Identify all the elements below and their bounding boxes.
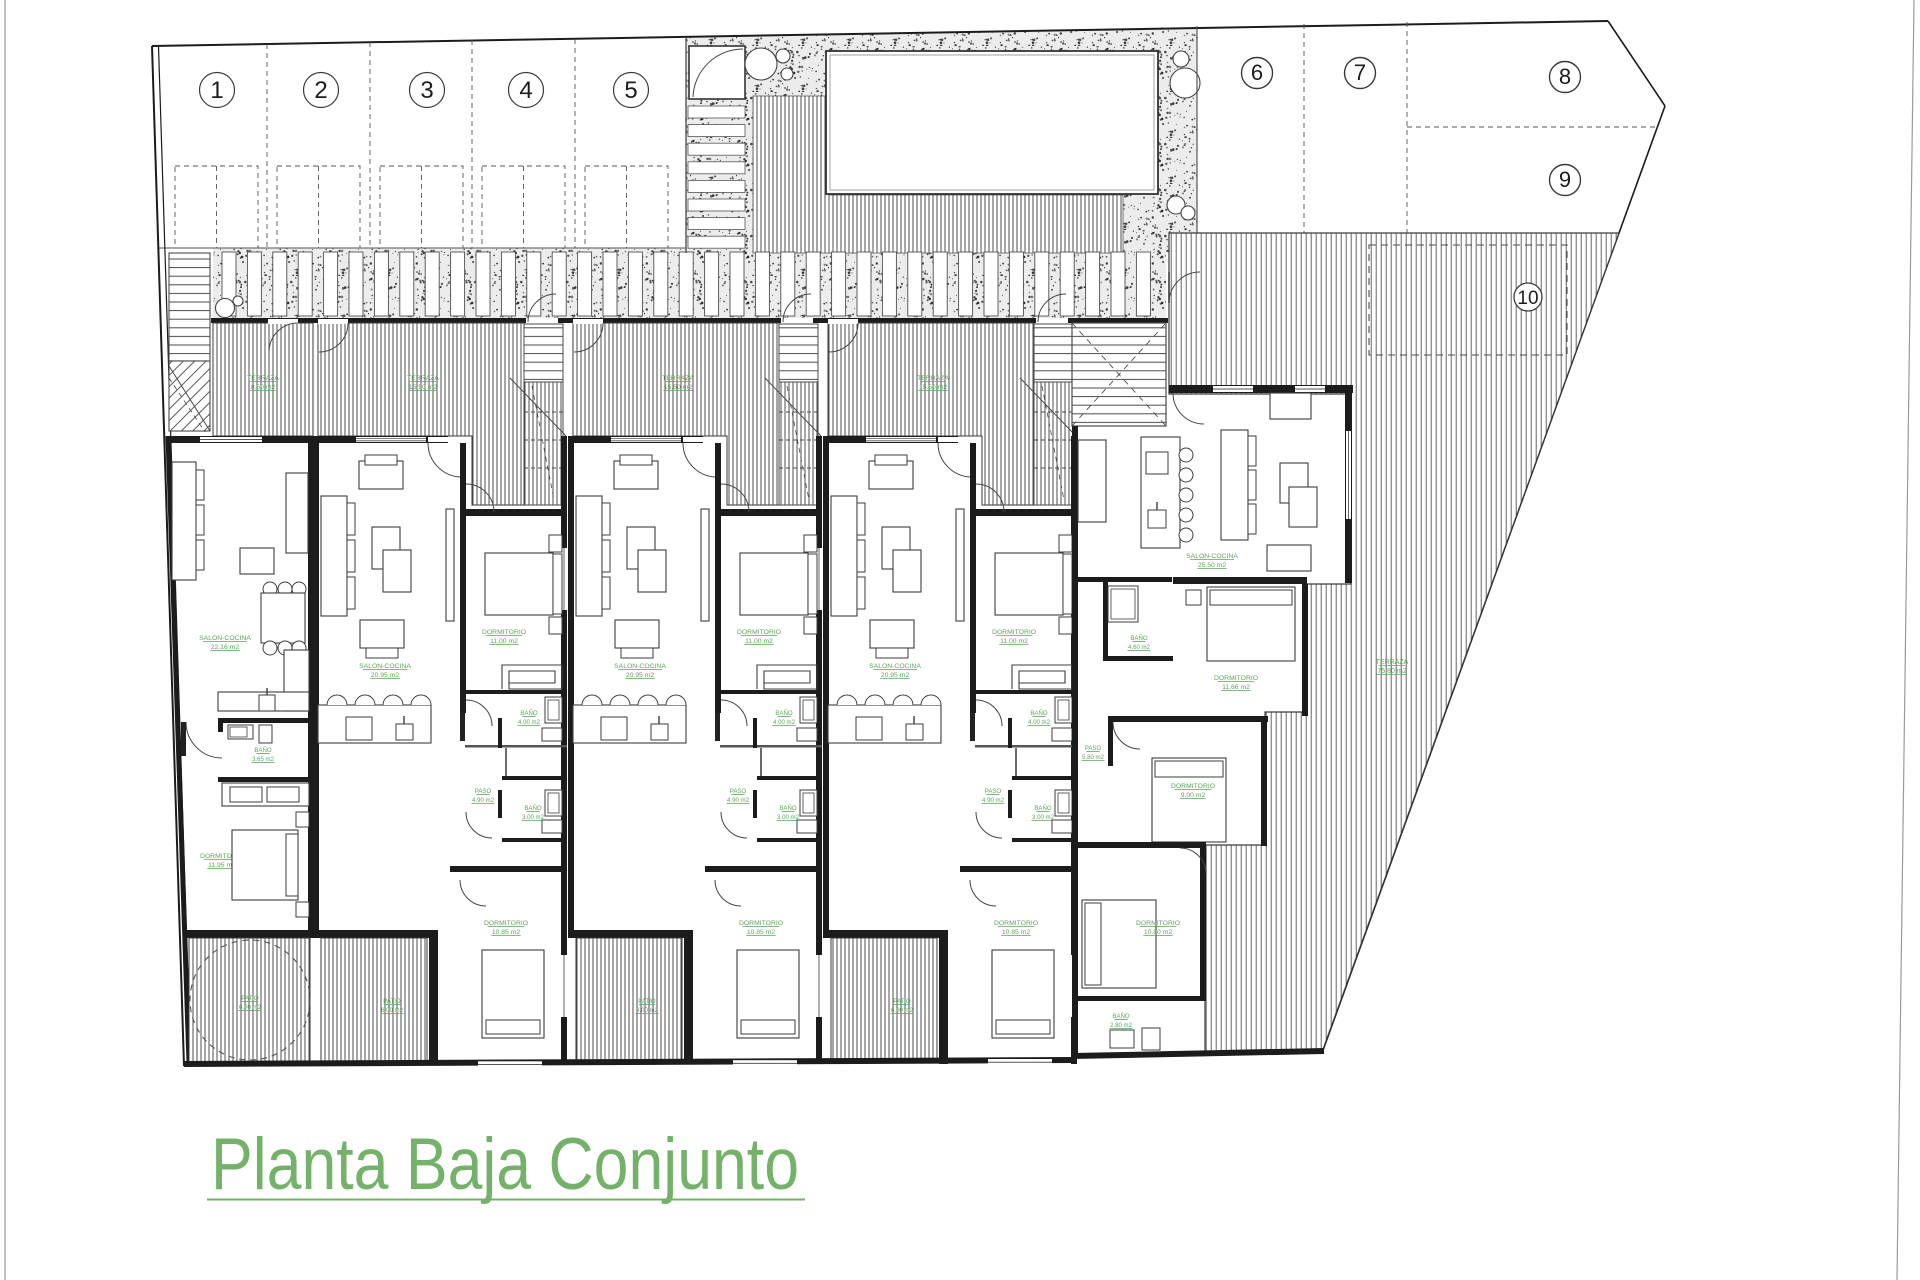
svg-text:Planta Baja Conjunto: Planta Baja Conjunto <box>211 1124 799 1205</box>
